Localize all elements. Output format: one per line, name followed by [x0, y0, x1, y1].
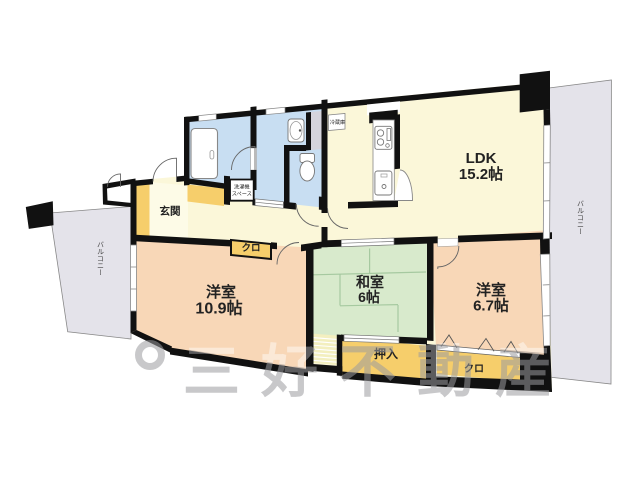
svg-text:バルコニー: バルコニー	[577, 200, 585, 235]
svg-text:和室: 和室	[356, 274, 384, 290]
svg-text:玄関: 玄関	[160, 205, 181, 218]
svg-text:10.9帖: 10.9帖	[195, 299, 242, 318]
svg-text:クロ: クロ	[241, 243, 260, 254]
svg-text:LDK: LDK	[466, 150, 497, 167]
svg-text:バルコニー: バルコニー	[97, 241, 105, 276]
svg-text:洗濯機: 洗濯機	[234, 183, 250, 191]
svg-text:6.7帖: 6.7帖	[473, 297, 509, 315]
svg-text:15.2帖: 15.2帖	[459, 165, 503, 183]
svg-text:冷蔵庫: 冷蔵庫	[330, 119, 345, 126]
svg-text:洋室: 洋室	[476, 281, 506, 299]
svg-text:スペース: スペース	[232, 191, 252, 198]
svg-text:6帖: 6帖	[358, 289, 380, 305]
svg-text:洋室: 洋室	[206, 283, 236, 301]
